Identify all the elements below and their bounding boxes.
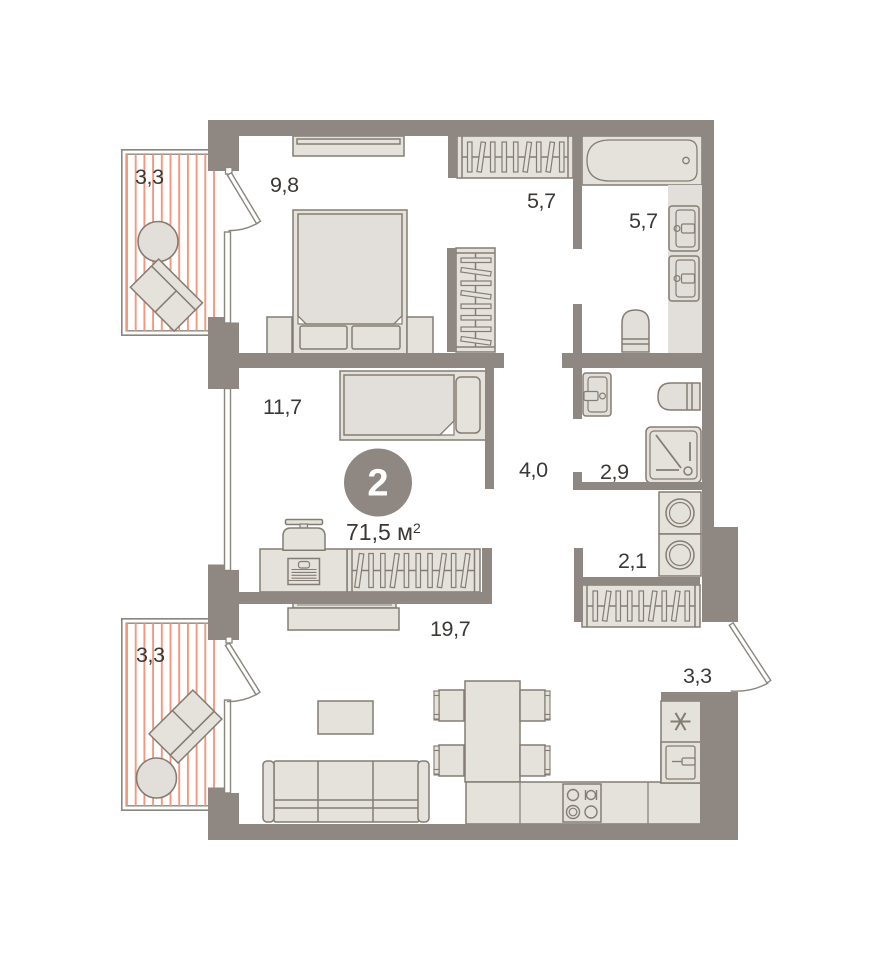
svg-text:71,5 м2: 71,5 м2 <box>346 519 421 545</box>
svg-text:2,9: 2,9 <box>600 460 629 484</box>
svg-text:3,3: 3,3 <box>136 643 165 667</box>
svg-text:5,7: 5,7 <box>527 189 556 213</box>
svg-text:3,3: 3,3 <box>135 165 164 189</box>
svg-text:4,0: 4,0 <box>519 458 548 482</box>
svg-text:2: 2 <box>367 463 388 505</box>
svg-text:19,7: 19,7 <box>430 617 470 641</box>
svg-text:11,7: 11,7 <box>263 395 302 419</box>
svg-text:2,1: 2,1 <box>618 549 647 573</box>
svg-text:5,7: 5,7 <box>629 209 658 233</box>
svg-text:9,8: 9,8 <box>270 173 299 197</box>
svg-text:3,3: 3,3 <box>683 664 712 688</box>
